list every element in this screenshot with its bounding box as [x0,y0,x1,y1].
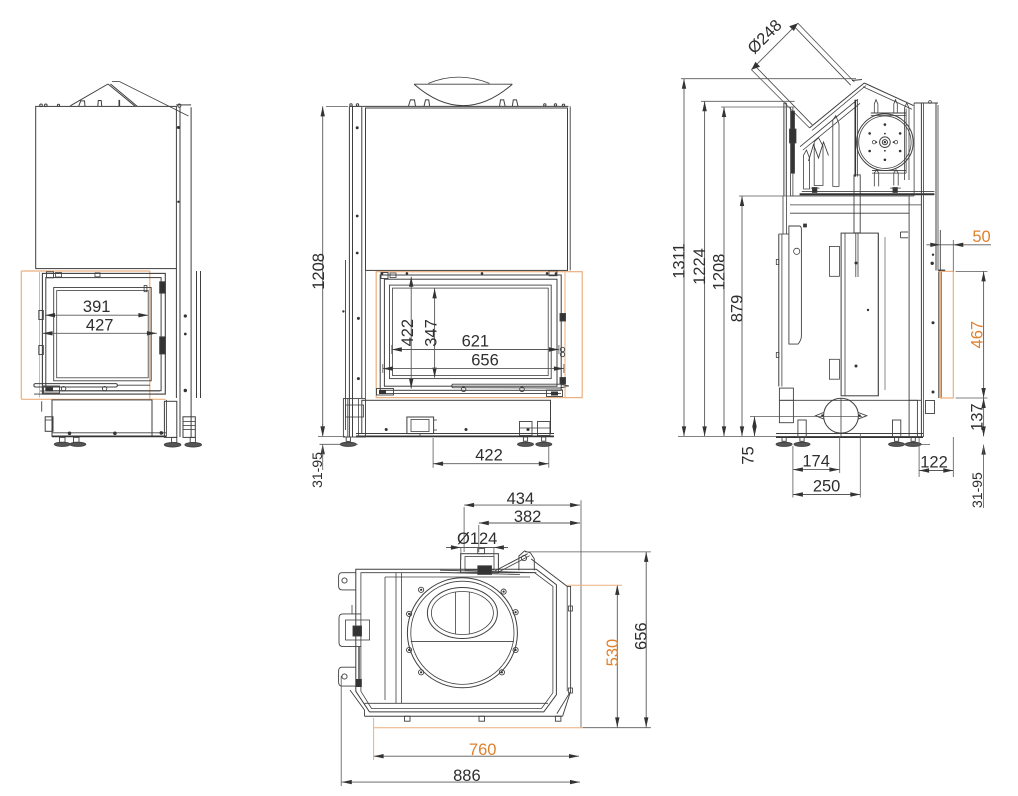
svg-text:1224: 1224 [691,248,709,285]
svg-text:467: 467 [969,321,987,349]
svg-text:427: 427 [86,316,114,334]
svg-text:174: 174 [802,453,830,471]
svg-text:31-95: 31-95 [969,472,985,508]
svg-text:879: 879 [729,295,747,323]
svg-text:422: 422 [475,447,503,465]
svg-text:886: 886 [453,767,481,785]
svg-text:Ø124: Ø124 [457,530,497,548]
svg-text:137: 137 [969,403,987,431]
svg-text:760: 760 [469,741,497,759]
svg-text:656: 656 [471,352,499,370]
svg-text:1208: 1208 [310,253,328,290]
svg-text:382: 382 [514,508,542,526]
svg-text:391: 391 [83,298,111,316]
svg-text:422: 422 [399,319,417,347]
svg-text:621: 621 [462,333,490,351]
svg-text:347: 347 [423,319,441,347]
svg-text:1208: 1208 [711,254,729,291]
svg-text:434: 434 [507,490,535,508]
svg-text:50: 50 [972,228,990,246]
svg-text:75: 75 [740,446,758,464]
svg-text:530: 530 [604,639,622,667]
svg-text:1311: 1311 [671,243,689,278]
svg-text:656: 656 [633,622,651,650]
svg-text:31-95: 31-95 [309,452,325,488]
svg-text:250: 250 [813,478,841,496]
svg-text:122: 122 [920,453,948,471]
